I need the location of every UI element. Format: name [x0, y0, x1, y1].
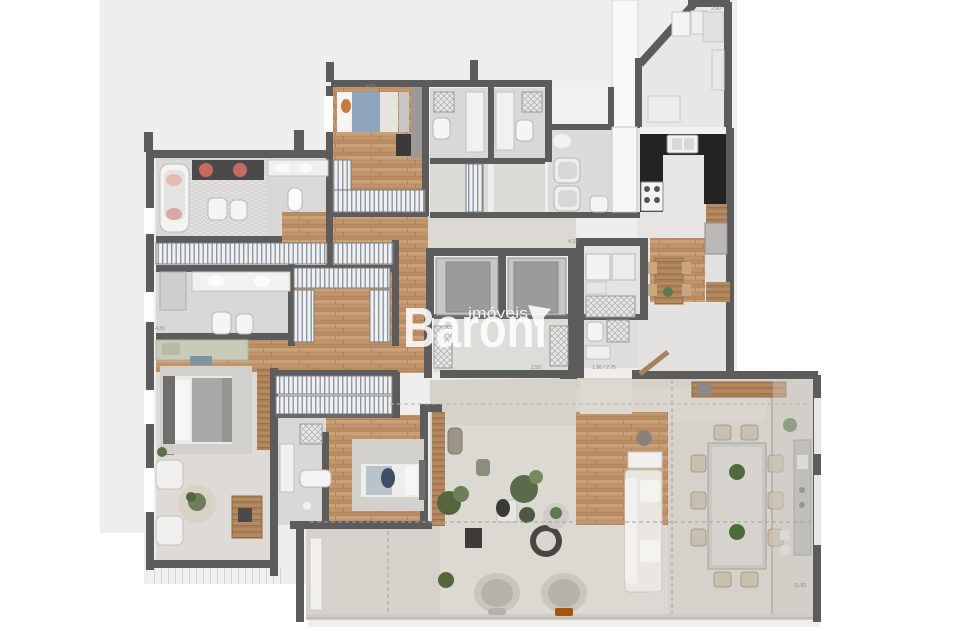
svg-text:4.30: 4.30 — [155, 326, 165, 332]
svg-text:2.90: 2.90 — [711, 6, 721, 12]
svg-text:2.50: 2.50 — [531, 365, 541, 371]
svg-text:4.05: 4.05 — [366, 84, 376, 90]
svg-text:11.90: 11.90 — [794, 583, 806, 589]
svg-text:1.86 / 2.75: 1.86 / 2.75 — [592, 365, 616, 371]
svg-text:imóveis: imóveis — [468, 305, 528, 322]
svg-text:4.32: 4.32 — [568, 239, 578, 245]
